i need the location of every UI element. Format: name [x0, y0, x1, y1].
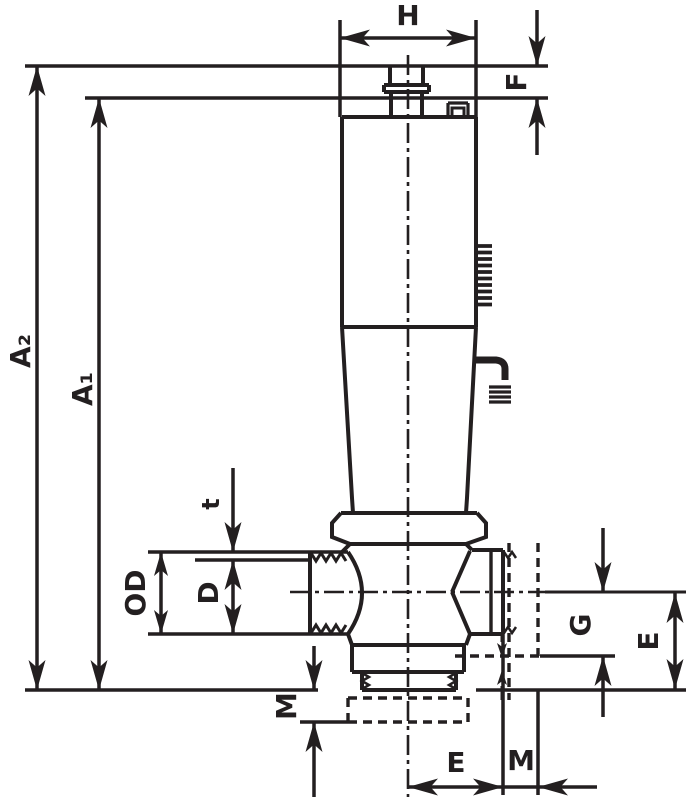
label-t: t — [199, 498, 223, 509]
label-M-left: M — [273, 692, 301, 720]
centerlines — [290, 55, 545, 797]
handle-marking-text — [478, 246, 492, 305]
thread-teeth — [311, 552, 516, 689]
label-F: F — [503, 72, 531, 91]
technical-drawing — [0, 0, 686, 800]
nut-bottom-corner-threads — [504, 627, 516, 633]
label-E-right: E — [635, 631, 663, 650]
valve-body-outline — [310, 550, 503, 690]
nut-top-corner-threads — [504, 552, 516, 558]
label-OD: OD — [122, 569, 150, 616]
label-M-bottom: M — [507, 747, 535, 775]
hook-detail — [473, 360, 511, 402]
label-A1: A₁ — [69, 372, 97, 406]
label-E-bottom: E — [446, 749, 465, 777]
label-A2: A₂ — [7, 334, 35, 368]
dimension-lines — [37, 10, 675, 797]
label-G: G — [567, 614, 595, 637]
left-port-top-threads — [311, 553, 346, 561]
extension-lines — [25, 20, 686, 795]
dimension-arrowheads — [29, 30, 684, 796]
label-D: D — [195, 581, 223, 604]
hook-tag-stripes — [489, 387, 511, 402]
label-H: H — [396, 2, 419, 30]
left-port-bottom-threads — [311, 625, 346, 633]
drawing-canvas: H F A₂ A₁ t OD D M G E E M — [0, 0, 686, 800]
